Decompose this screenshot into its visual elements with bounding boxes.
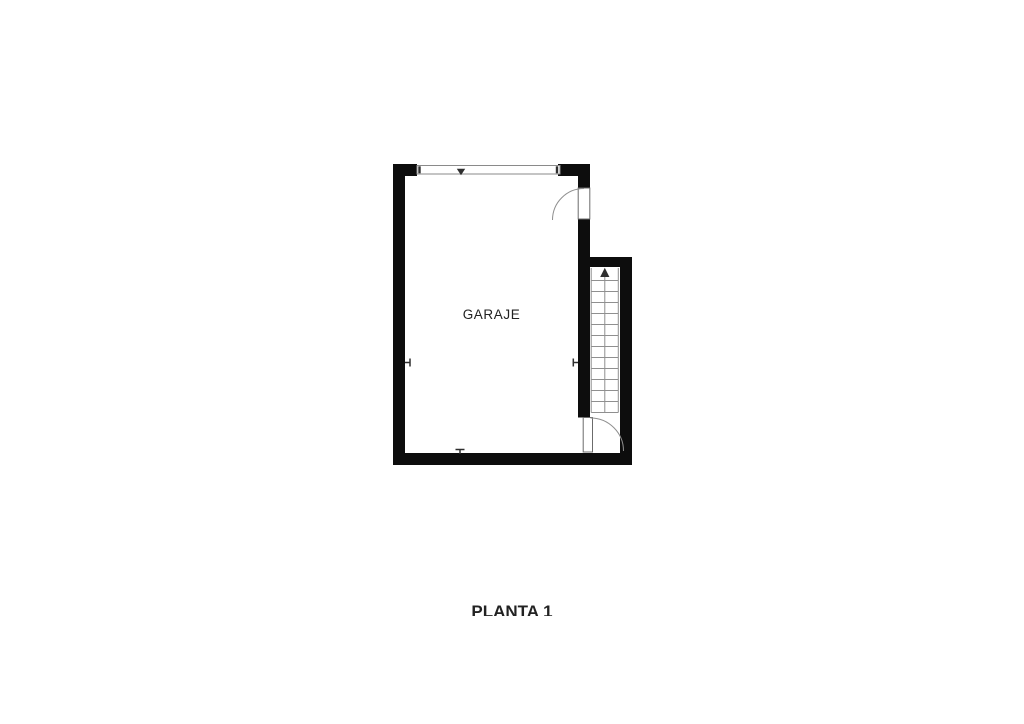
garage-door-track [417,166,560,175]
garage-door-right-cap [556,166,558,173]
entry-door [553,188,590,220]
stair-door-leaf [583,418,592,453]
wall-tick-bottom [456,450,465,455]
entry-door-leaf [578,188,590,219]
stair-door-swing-arc [591,418,624,451]
staircase [591,268,618,413]
wall-tick-left [405,359,411,367]
stair-door [578,418,624,454]
garage-door-left-cap [418,166,420,173]
garage-door-symbol [417,166,560,176]
wall-tick-right [573,359,578,367]
plan-linework [0,0,1024,724]
floor-plan-canvas: GARAJE PLANTA 1 [0,0,1024,724]
stair-up-arrow-icon [600,268,609,277]
